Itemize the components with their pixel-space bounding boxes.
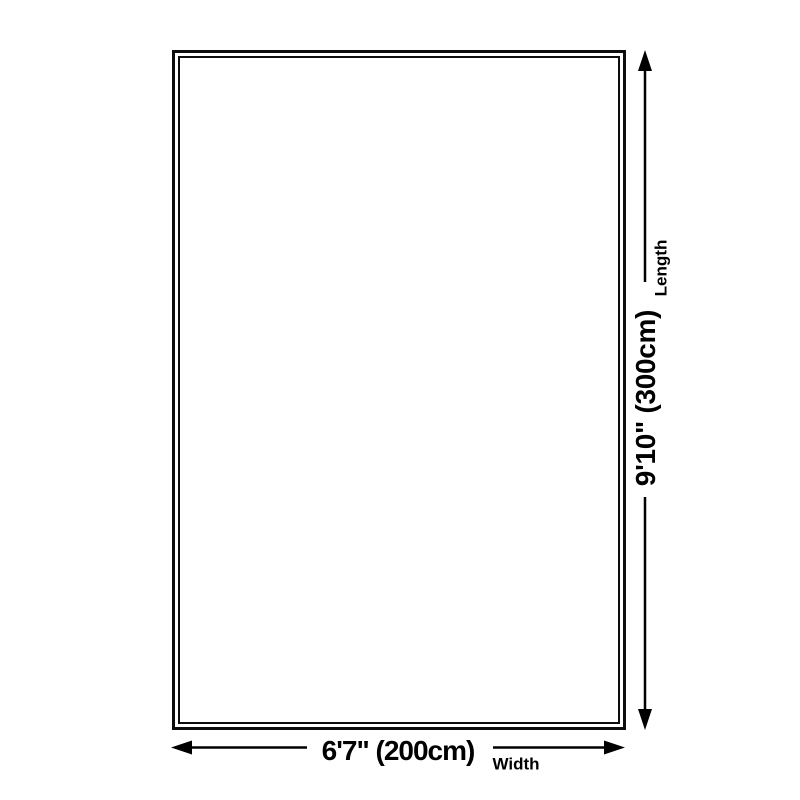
dimension-diagram: 6'7" (200cm) Width 9'10" (300cm) Length [0,0,800,800]
length-value: 9'10" (300cm) [632,310,660,486]
length-label: Length [653,240,670,297]
width-value: 6'7" (200cm) [322,737,475,765]
length-arrowhead-down [638,709,652,730]
width-arrowhead-right [604,741,625,755]
length-arrowhead-up [638,50,652,71]
width-label: Width [492,756,539,773]
width-arrowhead-left [171,741,192,755]
rug-inner-border [178,56,620,724]
rug-outline [172,50,626,730]
